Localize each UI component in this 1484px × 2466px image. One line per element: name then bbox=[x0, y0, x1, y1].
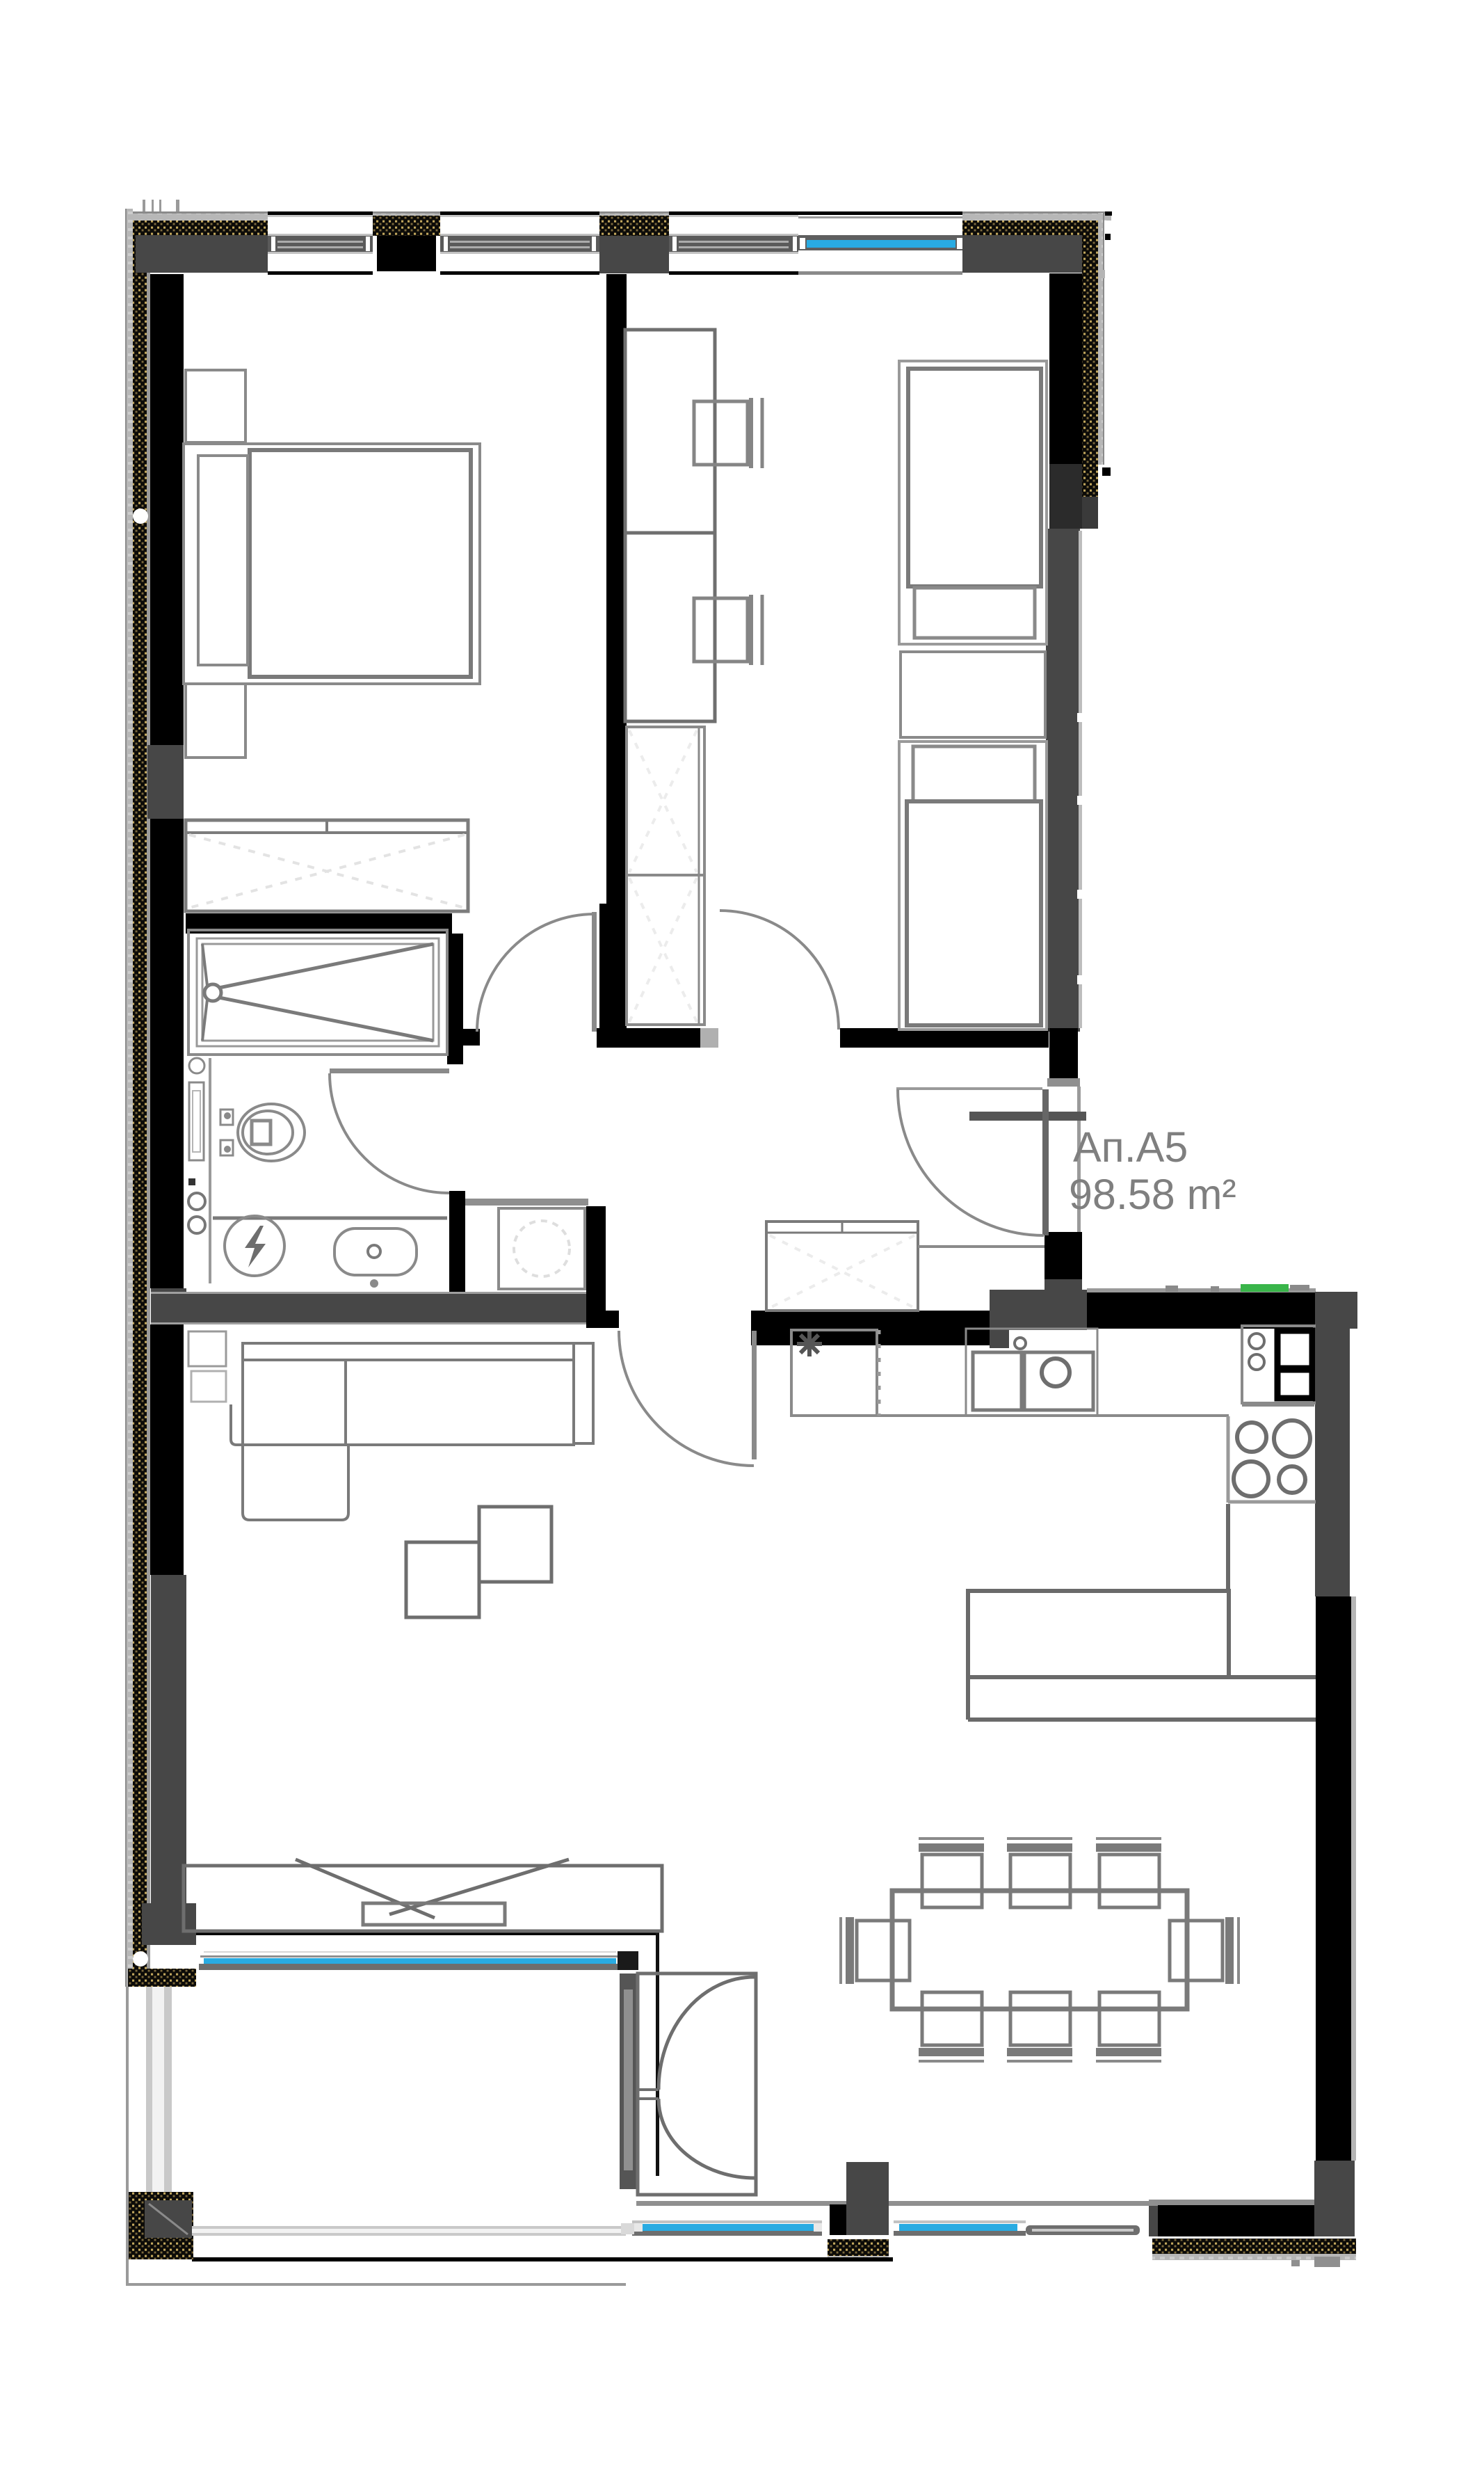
svg-text:98.58 m²: 98.58 m² bbox=[1069, 1171, 1236, 1218]
svg-text:Ап.А5: Ап.А5 bbox=[1073, 1123, 1188, 1171]
